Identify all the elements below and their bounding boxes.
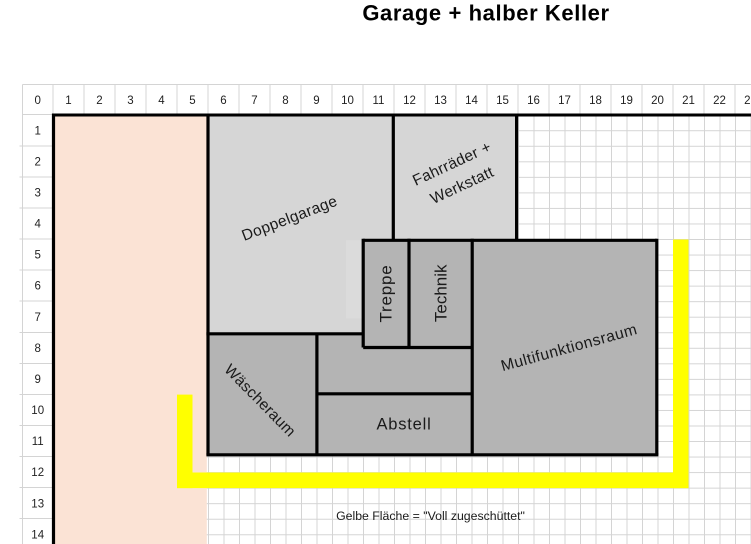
svg-text:5: 5	[34, 250, 40, 262]
svg-text:17: 17	[558, 95, 571, 107]
svg-text:13: 13	[31, 498, 44, 510]
svg-text:21: 21	[682, 95, 695, 107]
svg-text:0: 0	[34, 95, 40, 107]
svg-text:7: 7	[34, 312, 40, 324]
svg-text:2: 2	[96, 95, 102, 107]
svg-text:10: 10	[341, 95, 354, 107]
svg-text:20: 20	[651, 95, 664, 107]
svg-text:18: 18	[589, 95, 602, 107]
svg-text:15: 15	[496, 95, 509, 107]
svg-text:4: 4	[34, 219, 41, 231]
svg-text:Gelbe Fläche = "Voll zugeschüt: Gelbe Fläche = "Voll zugeschüttet"	[336, 509, 525, 523]
svg-text:8: 8	[34, 343, 40, 355]
svg-text:6: 6	[34, 281, 40, 293]
svg-text:4: 4	[158, 95, 165, 107]
svg-text:9: 9	[34, 374, 40, 386]
svg-text:11: 11	[32, 436, 44, 448]
svg-text:14: 14	[465, 95, 478, 107]
svg-text:11: 11	[373, 95, 385, 107]
svg-text:1: 1	[65, 95, 71, 107]
svg-text:22: 22	[713, 95, 726, 107]
svg-text:Abstell: Abstell	[376, 416, 431, 434]
svg-text:13: 13	[434, 95, 447, 107]
svg-text:16: 16	[527, 95, 540, 107]
svg-text:14: 14	[31, 529, 44, 541]
svg-text:12: 12	[31, 467, 44, 479]
svg-text:5: 5	[189, 95, 195, 107]
svg-text:Treppe: Treppe	[377, 264, 396, 322]
svg-text:3: 3	[34, 188, 40, 200]
svg-text:Garage + halber Keller: Garage + halber Keller	[362, 1, 609, 26]
svg-text:8: 8	[282, 95, 288, 107]
svg-text:6: 6	[220, 95, 226, 107]
svg-text:10: 10	[31, 405, 44, 417]
svg-text:Technik: Technik	[432, 264, 451, 322]
svg-text:7: 7	[251, 95, 257, 107]
svg-text:9: 9	[313, 95, 319, 107]
svg-text:12: 12	[403, 95, 416, 107]
svg-text:2: 2	[34, 156, 40, 168]
svg-text:23: 23	[744, 95, 751, 107]
svg-text:1: 1	[34, 125, 40, 137]
svg-text:19: 19	[620, 95, 633, 107]
svg-text:3: 3	[127, 95, 133, 107]
